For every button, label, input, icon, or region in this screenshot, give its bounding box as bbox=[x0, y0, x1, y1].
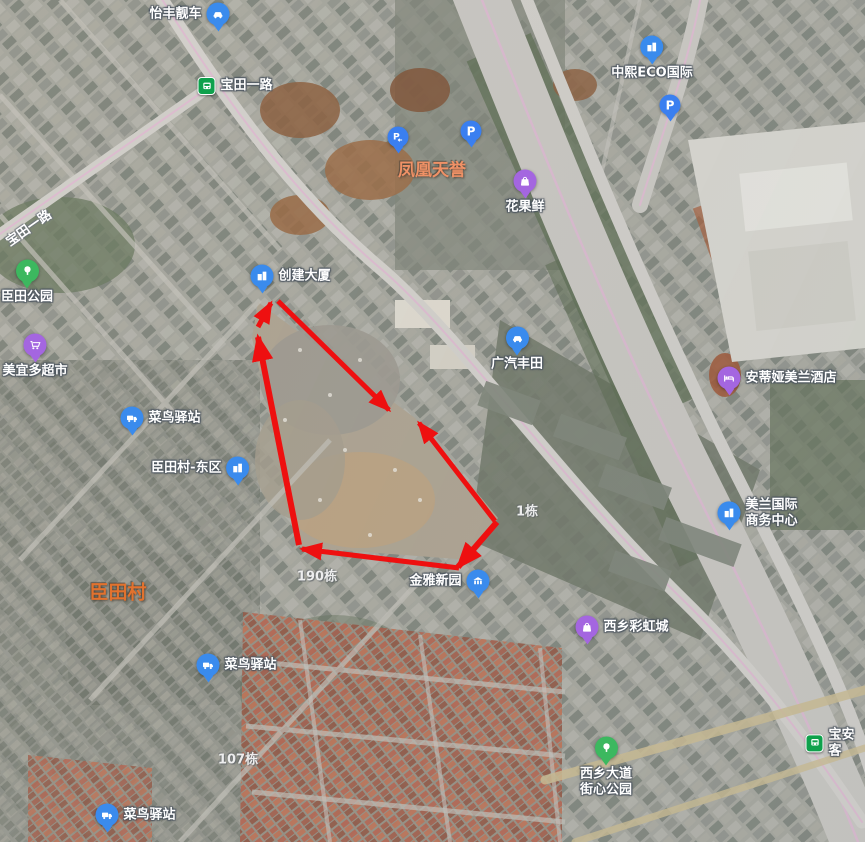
parking-icon: P bbox=[461, 121, 482, 142]
poi-label: 宝安客 bbox=[829, 727, 856, 758]
poi-中熙ECO国际[interactable]: 中熙ECO国际 bbox=[611, 36, 692, 82]
poi-label: 菜鸟驿站 bbox=[149, 410, 201, 426]
poi-label: 金雅新园 bbox=[409, 573, 461, 589]
truck-icon bbox=[96, 804, 119, 827]
poi-菜鸟驿站[interactable]: 菜鸟驿站 bbox=[121, 407, 201, 430]
transit-icon bbox=[198, 77, 216, 95]
poi-菜鸟驿站[interactable]: 菜鸟驿站 bbox=[197, 654, 277, 677]
poi-宝安客[interactable]: 宝安客 bbox=[806, 727, 856, 758]
poi-label: 西乡大道 街心公园 bbox=[580, 767, 632, 798]
poi-西乡彩虹城[interactable]: 西乡彩虹城 bbox=[576, 616, 669, 639]
poi-美兰国际商务中心[interactable]: 美兰国际 商务中心 bbox=[718, 497, 798, 528]
poi-label: 怡丰靓车 bbox=[149, 6, 201, 22]
cart-icon bbox=[23, 334, 46, 357]
tree-icon bbox=[15, 260, 38, 283]
car-icon bbox=[505, 327, 528, 350]
poi-金雅新园[interactable]: 金雅新园 bbox=[409, 570, 489, 593]
building-icon bbox=[640, 36, 663, 59]
poi-label: 花果鲜 bbox=[505, 200, 544, 216]
poi-label: 中熙ECO国际 bbox=[611, 66, 692, 82]
parking-entrance-icon: P bbox=[388, 127, 409, 148]
poi-广汽丰田[interactable]: 广汽丰田 bbox=[491, 327, 543, 373]
building-icon bbox=[251, 265, 274, 288]
poi-宝田一路[interactable]: 宝田一路 bbox=[198, 77, 273, 95]
poi-label: 美兰国际 商务中心 bbox=[746, 497, 798, 528]
bag-icon bbox=[576, 616, 599, 639]
poi-美宜多超市[interactable]: 美宜多超市 bbox=[2, 334, 67, 380]
truck-icon bbox=[197, 654, 220, 677]
poi-菜鸟驿站[interactable]: 菜鸟驿站 bbox=[96, 804, 176, 827]
satellite-map[interactable]: 怡丰靓车宝田一路中熙ECO国际PPP花果鲜创建大厦广汽丰田安蒂娅美兰酒店美兰国际… bbox=[0, 0, 865, 842]
poi-parking[interactable]: P bbox=[660, 95, 681, 116]
poi-label: 创建大厦 bbox=[279, 268, 331, 284]
road-name-label: 宝田一路 bbox=[1, 204, 55, 249]
bank-icon bbox=[467, 570, 490, 593]
poi-label: 菜鸟驿站 bbox=[225, 657, 277, 673]
building-number-label: 107栋 bbox=[218, 749, 258, 768]
poi-label: 美宜多超市 bbox=[2, 364, 67, 380]
poi-label: 臣田村-东区 bbox=[151, 460, 221, 476]
poi-label: 西乡彩虹城 bbox=[604, 619, 669, 635]
building-icon bbox=[227, 457, 250, 480]
poi-臣田村-东区[interactable]: 臣田村-东区 bbox=[151, 457, 249, 480]
district-label: 凤凰天誉 bbox=[398, 156, 466, 181]
district-label: 臣田村 bbox=[89, 578, 146, 605]
building-number-label: 1栋 bbox=[516, 501, 538, 520]
building-number-label: 190栋 bbox=[297, 566, 337, 585]
poi-parking[interactable]: P bbox=[461, 121, 482, 142]
poi-安蒂娅美兰酒店[interactable]: 安蒂娅美兰酒店 bbox=[718, 367, 837, 390]
poi-臣田公园[interactable]: 臣田公园 bbox=[1, 260, 53, 306]
poi-创建大厦[interactable]: 创建大厦 bbox=[251, 265, 331, 288]
poi-label: 臣田公园 bbox=[1, 290, 53, 306]
poi-layer: 怡丰靓车宝田一路中熙ECO国际PPP花果鲜创建大厦广汽丰田安蒂娅美兰酒店美兰国际… bbox=[0, 0, 865, 842]
poi-label: 安蒂娅美兰酒店 bbox=[746, 370, 837, 386]
poi-parking-entrance[interactable]: P bbox=[388, 127, 409, 148]
poi-label: 宝田一路 bbox=[221, 78, 273, 94]
truck-icon bbox=[121, 407, 144, 430]
hotel-icon bbox=[718, 367, 741, 390]
parking-icon: P bbox=[660, 95, 681, 116]
poi-花果鲜[interactable]: 花果鲜 bbox=[505, 170, 544, 216]
poi-label: 广汽丰田 bbox=[491, 357, 543, 373]
poi-label: 菜鸟驿站 bbox=[124, 807, 176, 823]
transit-icon bbox=[806, 734, 824, 752]
poi-怡丰靓车[interactable]: 怡丰靓车 bbox=[149, 3, 229, 26]
building-icon bbox=[718, 502, 741, 525]
car-icon bbox=[207, 3, 230, 26]
poi-西乡大道街心公园[interactable]: 西乡大道 街心公园 bbox=[580, 737, 632, 798]
tree-icon bbox=[594, 737, 617, 760]
bag-icon bbox=[513, 170, 536, 193]
